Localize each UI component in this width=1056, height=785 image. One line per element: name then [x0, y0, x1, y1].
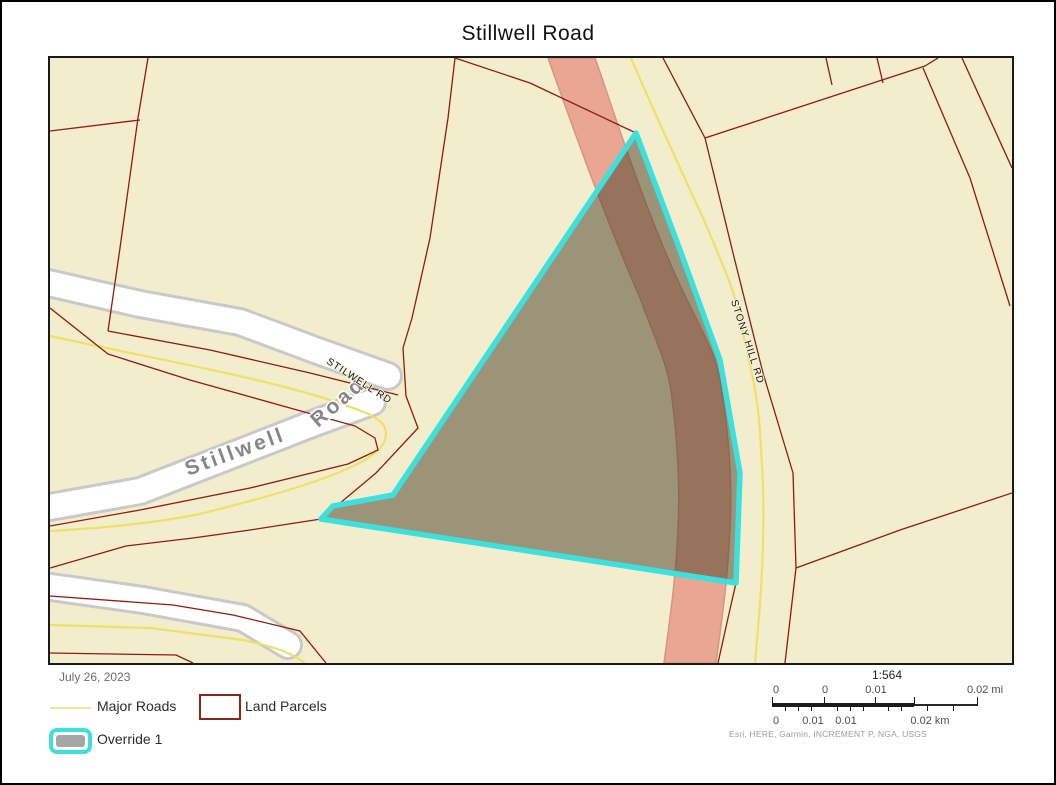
map-date: July 26, 2023	[59, 670, 130, 684]
scale-tick	[927, 705, 928, 711]
scale-km-1: 0.01	[802, 715, 823, 727]
scale-mi-2: 0.01	[865, 684, 886, 696]
scale-tick	[850, 705, 851, 711]
map-frame: Stillwell Road STILWELL RD STONY HILL RD	[48, 56, 1014, 665]
scale-tick	[772, 697, 773, 706]
scale-tick	[811, 705, 812, 711]
scale-tick	[824, 697, 825, 706]
scale-tick	[837, 705, 838, 711]
scale-tick	[888, 705, 889, 711]
scale-bar-thick-segment	[772, 703, 914, 707]
scale-km-3: 0.02 km	[910, 715, 949, 727]
major-roads-swatch	[50, 707, 91, 709]
scale-bar: 0 0 0.01 0.02 mi 0 0.01 0.01 0.02 km	[772, 684, 1012, 734]
scale-tick	[953, 705, 954, 711]
map-title: Stillwell Road	[2, 22, 1054, 46]
map-canvas[interactable]: Stillwell Road STILWELL RD STONY HILL RD	[50, 58, 1012, 663]
scale-tick	[875, 697, 876, 706]
scale-tick	[863, 705, 864, 711]
scale-tick	[977, 697, 978, 706]
scale-tick	[785, 705, 786, 711]
scale-tick	[901, 705, 902, 711]
scale-ratio: 1:564	[857, 668, 917, 682]
scale-tick	[914, 697, 915, 706]
scale-mi-0: 0	[773, 684, 779, 696]
scale-tick	[798, 705, 799, 711]
map-attribution: Esri, HERE, Garmin, INCREMENT P, NGA, US…	[729, 729, 927, 739]
scale-mi-1: 0	[822, 684, 828, 696]
map-document: Stillwell Road	[0, 0, 1056, 785]
land-parcels-swatch	[199, 694, 241, 720]
legend-major-roads: Major Roads	[97, 698, 176, 714]
scale-km-0: 0	[773, 715, 779, 727]
override-swatch	[49, 728, 92, 754]
override-swatch-fill	[56, 735, 85, 747]
scale-mi-3: 0.02 mi	[967, 684, 1003, 696]
scale-km-2: 0.01	[835, 715, 856, 727]
legend-override-1: Override 1	[97, 731, 162, 747]
legend-land-parcels: Land Parcels	[245, 698, 327, 714]
